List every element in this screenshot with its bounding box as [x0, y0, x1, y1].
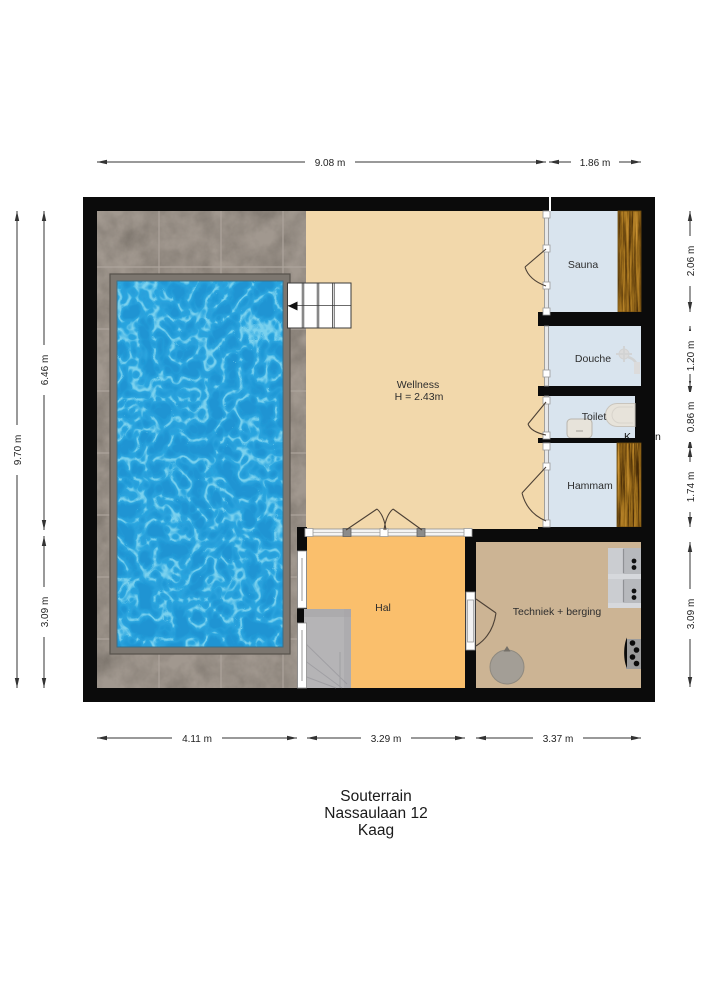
- svg-text:9.70 m: 9.70 m: [13, 435, 24, 466]
- svg-text:3.37 m: 3.37 m: [543, 734, 574, 745]
- svg-text:Wellness: Wellness: [397, 379, 439, 391]
- svg-text:1.20 m: 1.20 m: [686, 341, 697, 372]
- svg-text:1.86 m: 1.86 m: [580, 158, 611, 169]
- svg-text:Souterrain: Souterrain: [340, 788, 412, 805]
- svg-text:Kaag: Kaag: [358, 822, 394, 839]
- svg-text:Douche: Douche: [575, 353, 611, 365]
- svg-text:Techniek + berging: Techniek + berging: [513, 606, 602, 618]
- svg-text:H = 2.43m: H = 2.43m: [395, 391, 444, 403]
- svg-text:0.86 m: 0.86 m: [686, 402, 697, 433]
- svg-text:4.11 m: 4.11 m: [182, 734, 212, 745]
- svg-text:Hammam: Hammam: [567, 480, 613, 492]
- svg-text:Toilet: Toilet: [582, 411, 607, 423]
- svg-text:n: n: [655, 431, 661, 443]
- svg-text:3.29 m: 3.29 m: [371, 734, 402, 745]
- svg-text:Nassaulaan 12: Nassaulaan 12: [324, 805, 427, 822]
- svg-text:Hal: Hal: [375, 602, 391, 614]
- svg-text:K: K: [624, 431, 631, 443]
- svg-text:Sauna: Sauna: [568, 259, 599, 271]
- svg-text:3.09 m: 3.09 m: [40, 597, 51, 628]
- svg-text:2.06 m: 2.06 m: [686, 246, 697, 277]
- svg-text:6.46 m: 6.46 m: [40, 355, 51, 386]
- svg-text:3.09 m: 3.09 m: [686, 599, 697, 630]
- svg-text:1.74 m: 1.74 m: [686, 472, 697, 503]
- svg-text:9.08 m: 9.08 m: [315, 158, 346, 169]
